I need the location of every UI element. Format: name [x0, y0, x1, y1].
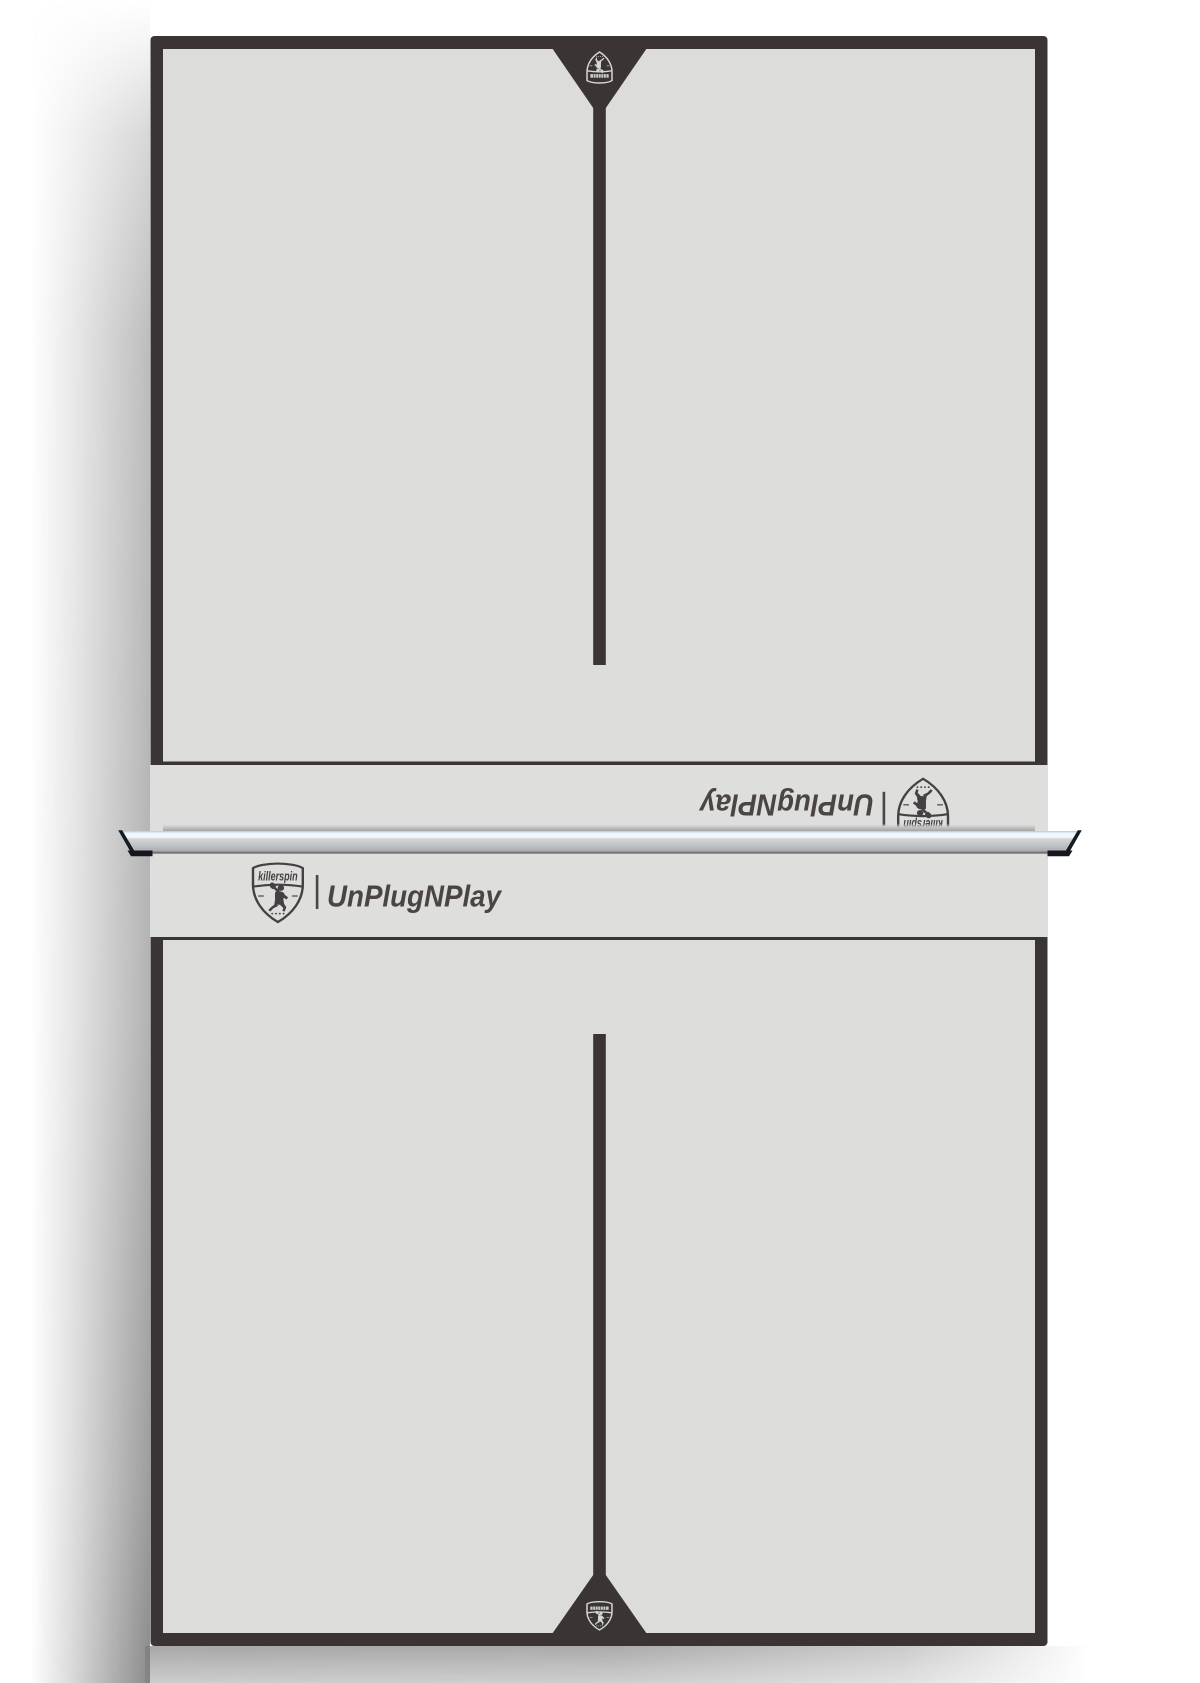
- svg-text:UnPlugNPlay: UnPlugNPlay: [327, 880, 503, 914]
